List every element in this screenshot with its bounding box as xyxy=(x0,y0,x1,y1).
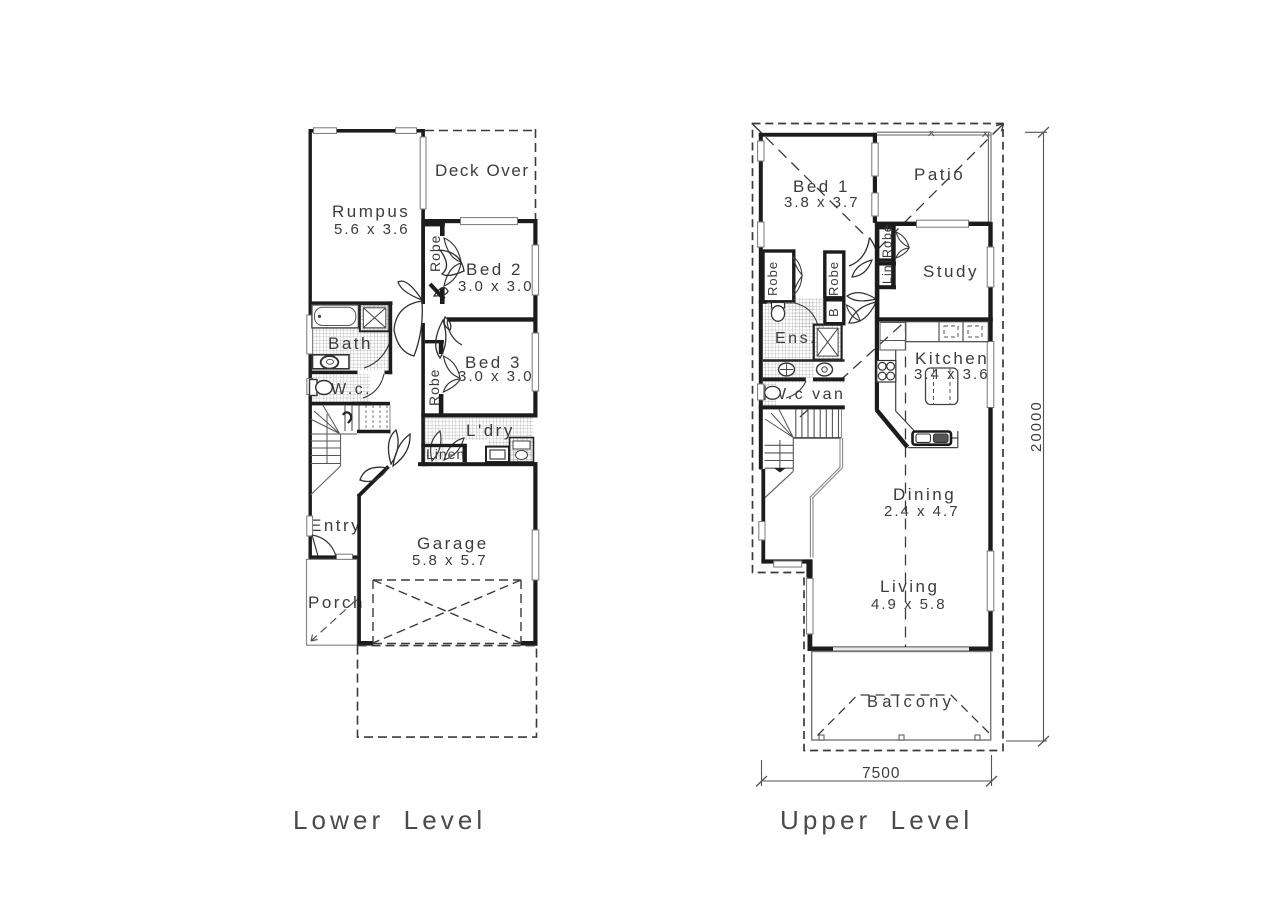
svg-text:7500: 7500 xyxy=(862,765,900,782)
svg-text:Study: Study xyxy=(923,262,979,281)
svg-text:Upper Level: Upper Level xyxy=(780,805,973,835)
svg-text:3.0 x 3.0: 3.0 x 3.0 xyxy=(458,278,534,295)
svg-text:5.8 x 5.7: 5.8 x 5.7 xyxy=(412,552,488,569)
svg-text:Robe: Robe xyxy=(826,261,841,296)
svg-text:Linen: Linen xyxy=(426,446,465,462)
svg-text:Robe: Robe xyxy=(765,261,780,296)
svg-text:W.c.: W.c. xyxy=(331,381,372,398)
svg-text:Rumpus: Rumpus xyxy=(332,202,410,221)
svg-text:Lin: Lin xyxy=(881,264,895,284)
svg-text:Deck Over: Deck Over xyxy=(435,161,530,180)
svg-text:Entry: Entry xyxy=(310,516,362,535)
svg-text:Balcony: Balcony xyxy=(867,693,955,711)
svg-text:3.0 x 3.0: 3.0 x 3.0 xyxy=(458,368,534,385)
svg-text:L'dry: L'dry xyxy=(466,421,515,440)
svg-text:3.8 x 3.7: 3.8 x 3.7 xyxy=(784,194,860,211)
svg-text:Lower Level: Lower Level xyxy=(293,805,486,835)
svg-text:B: B xyxy=(826,307,841,317)
svg-text:Robe: Robe xyxy=(426,369,442,406)
svg-text:Bath: Bath xyxy=(328,334,373,353)
svg-text:W.c van: W.c van xyxy=(771,386,845,403)
svg-text:5.6 x 3.6: 5.6 x 3.6 xyxy=(334,221,410,238)
svg-text:Ens.: Ens. xyxy=(775,330,817,347)
svg-text:Living: Living xyxy=(880,577,939,596)
svg-text:Porch: Porch xyxy=(308,593,365,612)
svg-text:Bed 2: Bed 2 xyxy=(466,260,523,279)
svg-text:Patio: Patio xyxy=(914,165,965,184)
svg-text:Dining: Dining xyxy=(893,485,956,504)
svg-text:Robe: Robe xyxy=(881,224,895,258)
svg-text:2.4 x 4.7: 2.4 x 4.7 xyxy=(884,503,960,520)
svg-text:Garage: Garage xyxy=(417,534,489,553)
svg-text:20000: 20000 xyxy=(1028,400,1045,452)
svg-text:4.9 x 5.8: 4.9 x 5.8 xyxy=(871,596,947,613)
svg-text:Robe: Robe xyxy=(427,235,443,272)
